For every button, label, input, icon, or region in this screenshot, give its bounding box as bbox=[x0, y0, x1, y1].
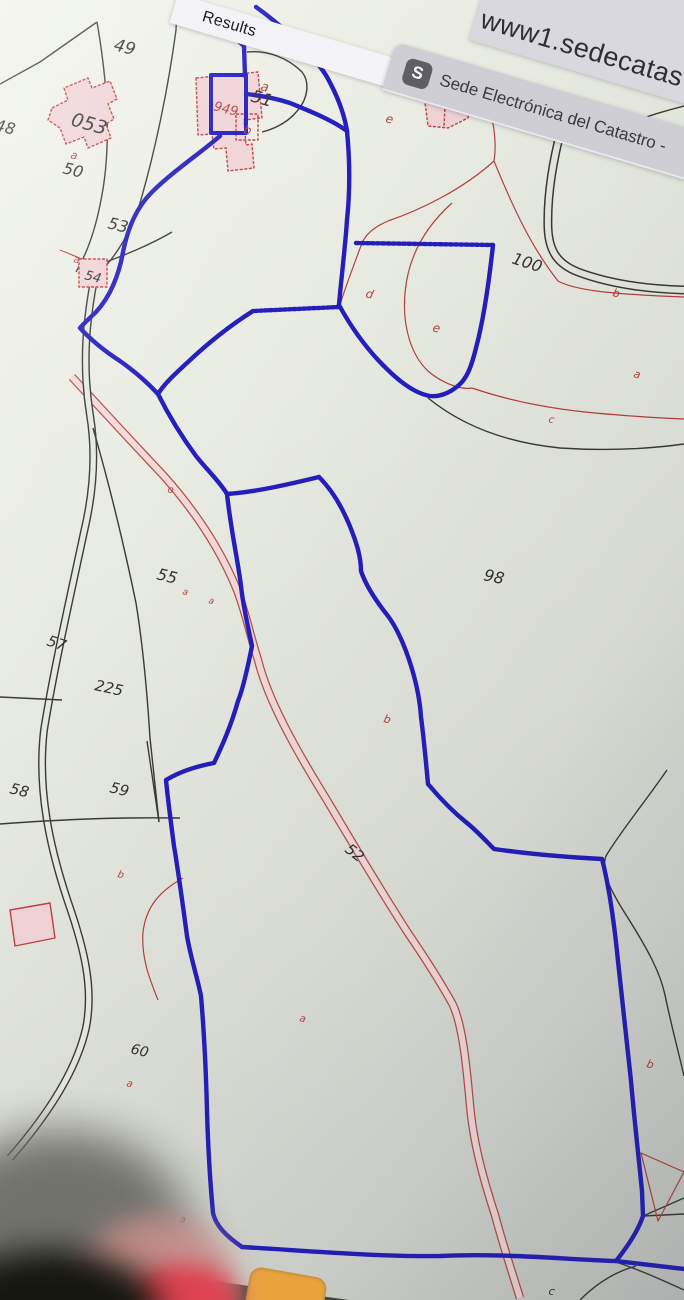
parcel-label: a bbox=[298, 1013, 307, 1025]
parcel-label: a bbox=[181, 587, 189, 598]
parcel-label: b bbox=[645, 1057, 655, 1071]
building-bottom-left bbox=[10, 903, 55, 946]
parcel-label: 60 bbox=[129, 1041, 150, 1061]
cadastral-map-canvas[interactable]: 4948053a50a51949b53a54e100debaco55aa9857… bbox=[0, 0, 684, 1300]
parcel-label: 55 bbox=[155, 564, 179, 587]
camino-path bbox=[72, 377, 520, 1298]
parcel-label: 50 bbox=[61, 158, 85, 181]
parcel-label: d bbox=[364, 286, 375, 302]
site-favicon-icon: S bbox=[401, 57, 435, 91]
selected-parcel-boundary bbox=[80, 3, 684, 1269]
parcel-label: a bbox=[125, 1078, 134, 1090]
parcel-label: a bbox=[632, 367, 642, 381]
parcel-label: b bbox=[611, 286, 621, 300]
parcel-label: o bbox=[166, 484, 175, 496]
parcel-label: a bbox=[178, 1214, 187, 1226]
parcel-label: 100 bbox=[510, 249, 545, 277]
subparcel-lines bbox=[60, 98, 684, 1221]
parcel-label: e bbox=[384, 111, 395, 126]
parcel-label: e bbox=[431, 320, 442, 335]
parcel-label: 98 bbox=[482, 565, 506, 588]
parcel-label: a bbox=[207, 596, 215, 607]
map-labels: 4948053a50a51949b53a54e100debaco55aa9857… bbox=[0, 35, 655, 1298]
photographed-screen: 4948053a50a51949b53a54e100debaco55aa9857… bbox=[0, 0, 684, 1300]
parcel-label: 58 bbox=[8, 779, 31, 801]
parcel-label: b bbox=[382, 712, 392, 726]
parcel-label: c bbox=[547, 414, 555, 426]
parcel-label: b bbox=[116, 869, 125, 881]
building-949 bbox=[196, 72, 262, 171]
parcel-label: 225 bbox=[93, 676, 125, 700]
parcel-lines bbox=[0, 8, 684, 1300]
parcel-label: c bbox=[547, 1284, 556, 1298]
parcel-label: a bbox=[120, 1203, 129, 1215]
buildings bbox=[10, 72, 470, 946]
parcel-label: 48 bbox=[0, 115, 17, 138]
parcel-label: 59 bbox=[108, 778, 131, 800]
parcel-label: 49 bbox=[112, 35, 138, 60]
